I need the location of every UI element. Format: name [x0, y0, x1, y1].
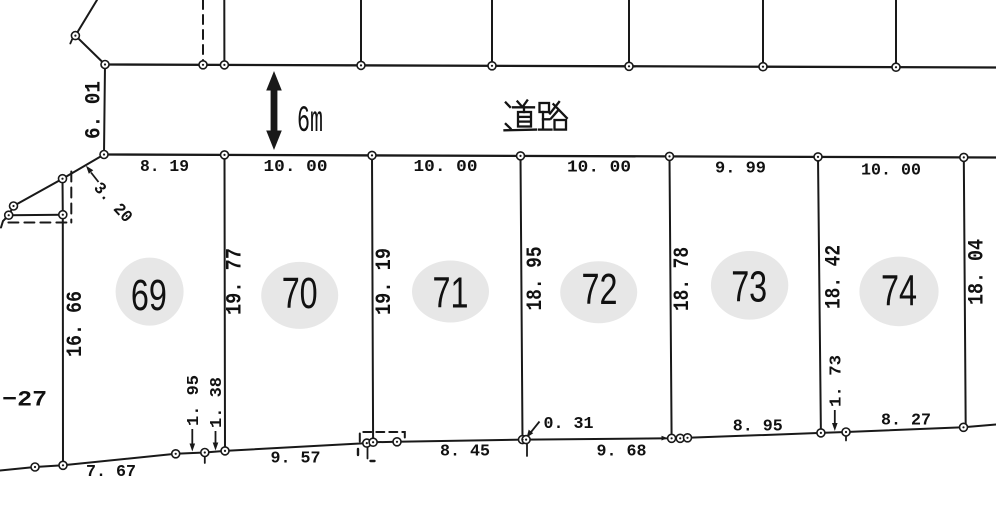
svg-text:−27: −27 — [2, 388, 47, 413]
svg-text:6m: 6m — [297, 101, 323, 143]
svg-text:7. 67: 7. 67 — [86, 463, 136, 482]
svg-text:9. 68: 9. 68 — [597, 443, 647, 462]
svg-text:10. 00: 10. 00 — [861, 162, 921, 181]
svg-text:10. 00: 10. 00 — [264, 158, 328, 177]
svg-text:1. 38: 1. 38 — [208, 377, 227, 428]
svg-text:70: 70 — [282, 269, 318, 318]
svg-text:6. 01: 6. 01 — [82, 81, 107, 139]
svg-text:19. 19: 19. 19 — [372, 248, 397, 315]
svg-text:10. 00: 10. 00 — [414, 158, 478, 177]
svg-text:18. 78: 18. 78 — [670, 247, 695, 311]
svg-text:8. 45: 8. 45 — [440, 443, 490, 462]
svg-text:73: 73 — [731, 262, 767, 311]
svg-text:71: 71 — [433, 269, 469, 318]
svg-text:8. 95: 8. 95 — [733, 417, 783, 436]
svg-text:9. 57: 9. 57 — [271, 450, 321, 469]
svg-text:9. 99: 9. 99 — [715, 160, 766, 179]
svg-text:1. 73: 1. 73 — [828, 355, 847, 407]
svg-text:19. 77: 19. 77 — [223, 248, 248, 315]
svg-text:18. 04: 18. 04 — [965, 239, 990, 305]
svg-text:10. 00: 10. 00 — [567, 158, 631, 177]
svg-text:69: 69 — [131, 271, 167, 320]
svg-text:74: 74 — [881, 267, 917, 316]
svg-text:72: 72 — [582, 265, 618, 314]
svg-text:8. 27: 8. 27 — [881, 412, 931, 431]
svg-text:18. 95: 18. 95 — [523, 247, 548, 311]
svg-text:8. 19: 8. 19 — [140, 158, 189, 177]
svg-text:18. 42: 18. 42 — [822, 245, 847, 309]
svg-text:16. 66: 16. 66 — [63, 291, 88, 357]
svg-text:0. 31: 0. 31 — [544, 415, 594, 434]
svg-text:1. 95: 1. 95 — [185, 375, 204, 426]
